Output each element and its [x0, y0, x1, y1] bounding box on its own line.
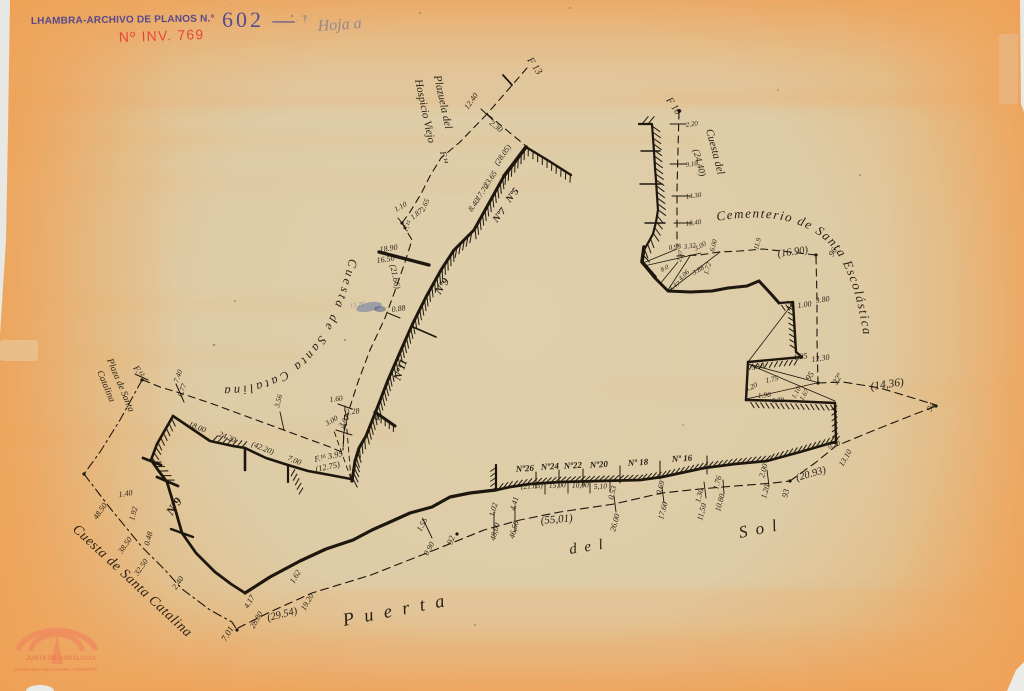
svg-text:Nº INV. 769: Nº INV. 769 — [119, 26, 205, 45]
svg-text:6.70: 6.70 — [771, 396, 784, 405]
svg-text:Nº22: Nº22 — [562, 460, 582, 471]
svg-text:1.60: 1.60 — [329, 393, 343, 404]
svg-text:– ·: – · — [227, 0, 238, 9]
svg-text:602 —: 602 — — [222, 7, 298, 32]
svg-text:Hoja a: Hoja a — [316, 15, 362, 35]
svg-text:Nº24: Nº24 — [539, 461, 559, 472]
svg-text:· ‽: · ‽ — [295, 14, 308, 27]
svg-text:10,00: 10,00 — [572, 480, 590, 490]
svg-text:Nº26: Nº26 — [514, 463, 534, 474]
svg-text:Nº20: Nº20 — [588, 459, 608, 470]
svg-text:JUNTA DE ANDALUCIA: JUNTA DE ANDALUCIA — [26, 655, 97, 662]
svg-text:(21.65): (21.65) — [521, 481, 544, 491]
svg-text:Nº 16: Nº 16 — [670, 453, 693, 465]
svg-text:CONSEJERIA DE CULTURA Y DEPORT: CONSEJERIA DE CULTURA Y DEPORTE — [14, 667, 97, 672]
svg-text:1.96: 1.96 — [757, 390, 771, 400]
svg-text:5,10: 5,10 — [594, 481, 608, 491]
svg-text:15,00: 15,00 — [549, 480, 567, 490]
svg-text:Nº 18: Nº 18 — [626, 457, 649, 469]
